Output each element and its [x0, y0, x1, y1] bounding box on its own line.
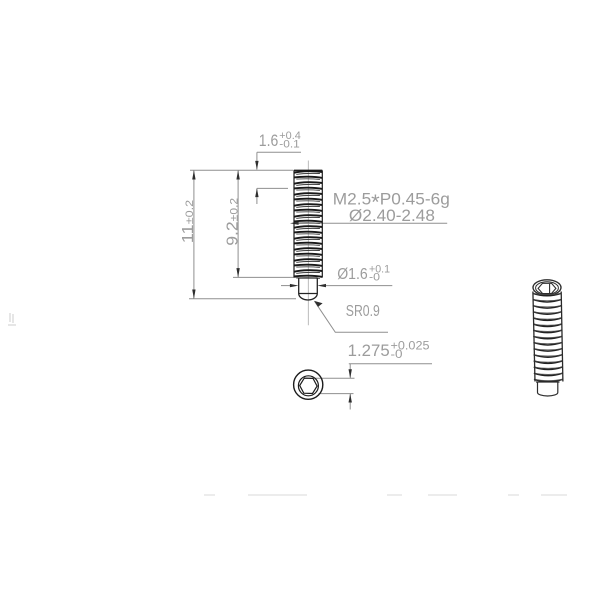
svg-text:Ø1.6: Ø1.6 [337, 266, 368, 283]
svg-text:-0: -0 [369, 272, 380, 284]
svg-text:1.6: 1.6 [259, 131, 279, 150]
svg-text:Ø2.40-2.48: Ø2.40-2.48 [349, 207, 435, 225]
svg-text:-0.1: -0.1 [279, 139, 300, 151]
svg-text:SR0.9: SR0.9 [346, 303, 380, 320]
svg-text:9.2±0.2: 9.2±0.2 [224, 198, 241, 246]
svg-text:1.275: 1.275 [348, 342, 390, 360]
svg-text:11±0.2: 11±0.2 [180, 200, 197, 244]
svg-text:-0: -0 [391, 349, 403, 361]
